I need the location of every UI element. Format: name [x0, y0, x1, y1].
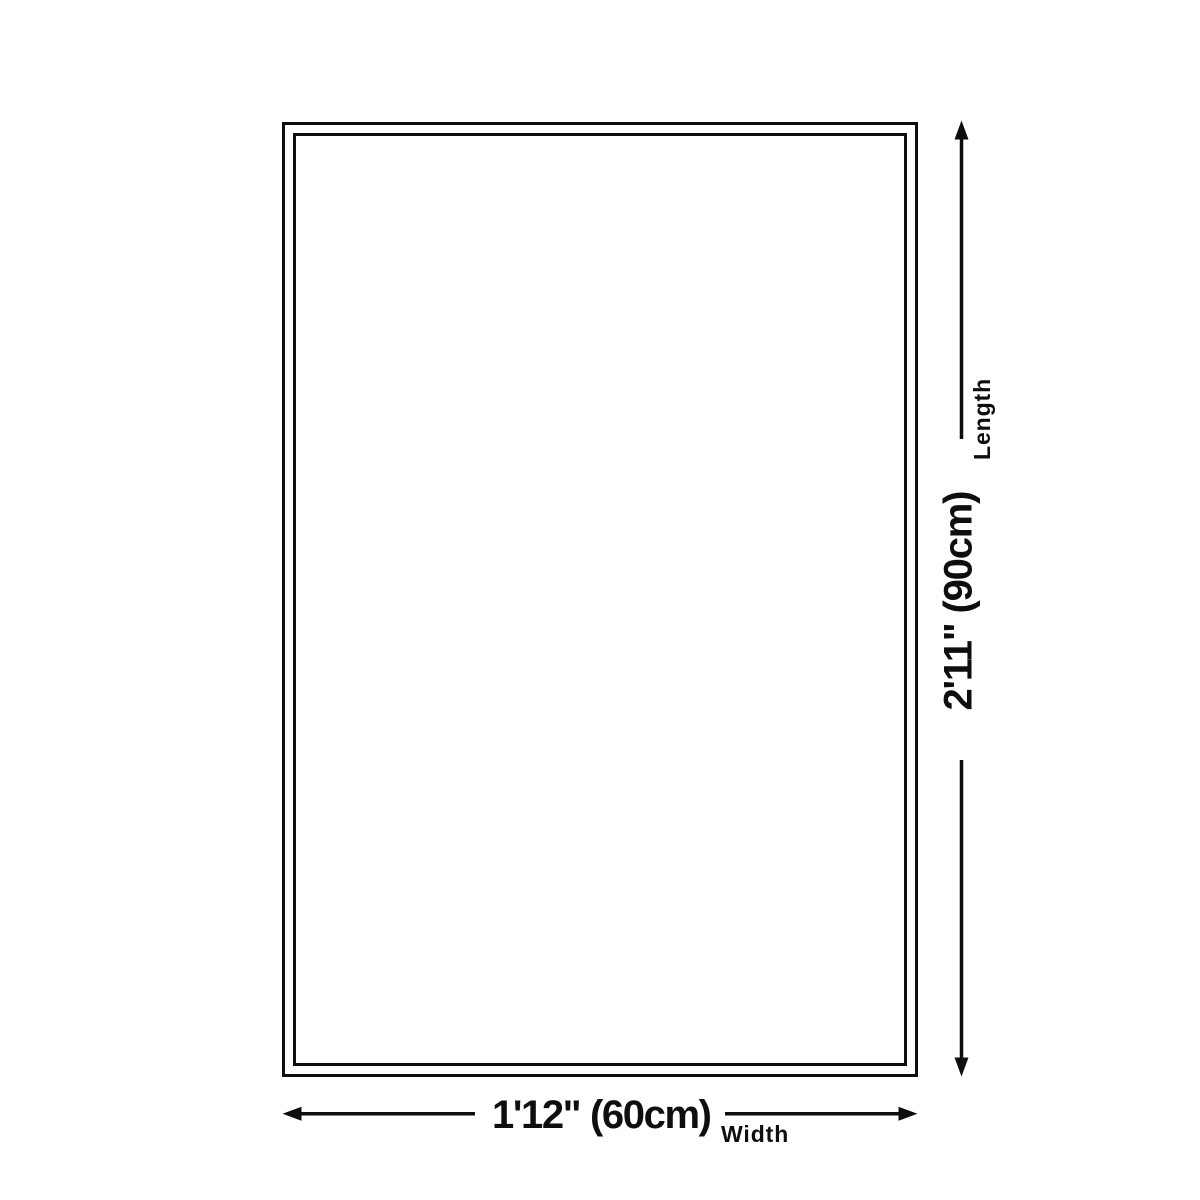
svg-text:2'11" (90cm): 2'11" (90cm) [937, 491, 981, 711]
svg-text:1'12" (60cm): 1'12" (60cm) [492, 1093, 712, 1137]
svg-text:Length: Length [969, 378, 995, 460]
svg-text:Width: Width [721, 1121, 789, 1147]
